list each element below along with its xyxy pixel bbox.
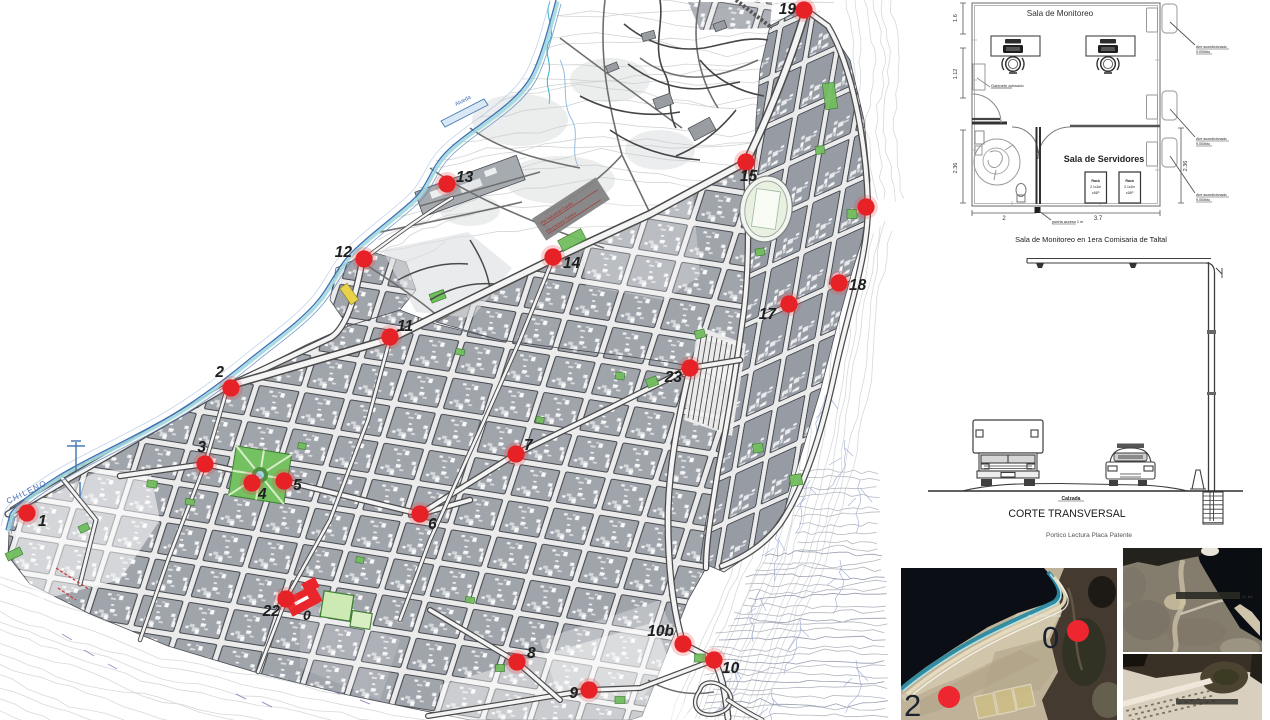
svg-text:10: 10 xyxy=(722,660,740,677)
svg-text:5: 5 xyxy=(293,477,302,494)
svg-text:Aire acondicionado: Aire acondicionado xyxy=(1196,193,1227,197)
svg-text:2.36: 2.36 xyxy=(1183,161,1189,172)
svg-text:Rack: Rack xyxy=(1125,179,1134,183)
svg-text:x16P: x16P xyxy=(1092,191,1100,195)
svg-text:15: 15 xyxy=(740,168,758,185)
svg-text:Aire acondicionado: Aire acondicionado xyxy=(1196,137,1227,141)
svg-text:9.000btu: 9.000btu xyxy=(1196,198,1210,202)
svg-text:7: 7 xyxy=(524,437,534,454)
svg-text:18: 18 xyxy=(849,277,867,294)
svg-text:Portico Lectura Placa Patente: Portico Lectura Placa Patente xyxy=(1046,532,1132,539)
svg-text:Aire acondicionado: Aire acondicionado xyxy=(1196,45,1227,49)
svg-text:Sala de Servidores: Sala de Servidores xyxy=(1064,154,1145,164)
svg-text:23: 23 xyxy=(664,369,683,386)
svg-text:10b: 10b xyxy=(647,623,674,640)
svg-text:Sala de Monitoreo en 1era Comi: Sala de Monitoreo en 1era Comisaria de T… xyxy=(1015,235,1167,244)
svg-text:Rack: Rack xyxy=(1091,179,1100,183)
svg-text:3: 3 xyxy=(197,439,206,456)
svg-text:3.7: 3.7 xyxy=(1094,216,1103,222)
svg-text:2.1x1m: 2.1x1m xyxy=(1124,185,1135,189)
svg-text:11: 11 xyxy=(397,318,413,335)
svg-text:2: 2 xyxy=(904,688,921,720)
svg-text:19: 19 xyxy=(779,1,797,18)
svg-text:9.000btu: 9.000btu xyxy=(1196,50,1210,54)
svg-text:17: 17 xyxy=(759,306,778,323)
svg-text:2: 2 xyxy=(214,364,224,381)
svg-text:12: 12 xyxy=(335,244,353,261)
svg-text:9: 9 xyxy=(569,685,578,702)
svg-text:CORTE TRANSVERSAL: CORTE TRANSVERSAL xyxy=(1008,508,1125,520)
svg-text:Gabinete adosado: Gabinete adosado xyxy=(991,83,1024,88)
svg-text:13: 13 xyxy=(456,169,474,186)
svg-text:2.1x1m: 2.1x1m xyxy=(1090,185,1101,189)
svg-text:6: 6 xyxy=(428,516,437,533)
svg-text:1.12: 1.12 xyxy=(953,69,959,80)
svg-text:2: 2 xyxy=(1002,216,1006,222)
svg-text:0: 0 xyxy=(1042,620,1059,655)
svg-text:8: 8 xyxy=(527,645,536,662)
svg-text:x16P: x16P xyxy=(1126,191,1134,195)
svg-text:Av. C. Taltal 400 m: Av. C. Taltal 400 m xyxy=(1028,613,1062,618)
svg-text:4.1 km: 4.1 km xyxy=(1242,595,1253,599)
svg-text:1: 1 xyxy=(38,513,47,530)
svg-text:14: 14 xyxy=(563,255,581,272)
svg-text:9.000btu: 9.000btu xyxy=(1196,142,1210,146)
svg-text:2.36: 2.36 xyxy=(953,163,959,174)
svg-text:Sala de Monitoreo: Sala de Monitoreo xyxy=(1027,9,1094,18)
svg-text:1.6: 1.6 xyxy=(953,14,959,22)
svg-text:4: 4 xyxy=(257,486,267,503)
svg-text:0: 0 xyxy=(303,607,311,623)
svg-text:22: 22 xyxy=(262,603,281,620)
svg-text:puerta acceso 1 m: puerta acceso 1 m xyxy=(1052,220,1083,224)
